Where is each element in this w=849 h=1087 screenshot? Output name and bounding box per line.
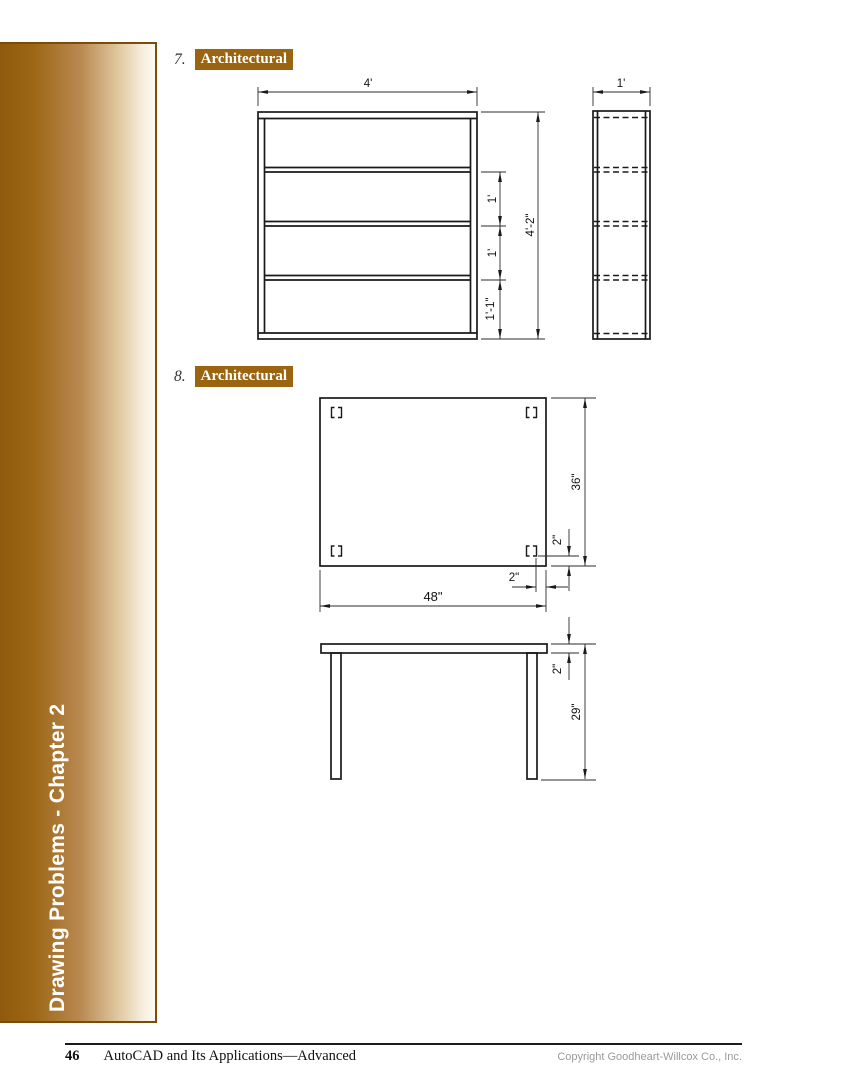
- dim-label-shelf-2: 1': [487, 249, 499, 258]
- bookshelf-shelves: [265, 168, 471, 281]
- dim-label-36: 36": [571, 474, 583, 491]
- table-drawing: 36" 2" 2" 48": [310, 390, 600, 800]
- dim-label-1ft-depth: 1': [617, 78, 626, 90]
- page-footer: 46 AutoCAD and Its Applications—Advanced…: [65, 1043, 742, 1065]
- page-number: 46: [65, 1048, 80, 1065]
- dim-label-shelf-3: 1'-1": [485, 298, 497, 321]
- book-title: AutoCAD and Its Applications—Advanced: [104, 1048, 357, 1065]
- dim-table-leg-inset-bottom: 2": [538, 529, 579, 591]
- dim-label-2in-v: 2": [552, 535, 564, 545]
- copyright-notice: Copyright Goodheart-Willcox Co., Inc.: [557, 1051, 742, 1063]
- problem-8-category-badge: Architectural: [195, 366, 293, 387]
- dim-label-48: 48": [423, 589, 442, 604]
- dim-label-2in-thickness: 2": [552, 664, 564, 674]
- table-hidden-legs: [332, 408, 537, 557]
- problem-8-header: 8. Architectural: [174, 366, 293, 387]
- bookshelf-hidden-lines: [594, 118, 649, 334]
- bookshelf-drawing: 4' 1' 1' 1' 1'-1" 4'-2": [250, 75, 660, 350]
- table-top-view: [320, 398, 546, 566]
- dim-bookshelf-width: 4': [258, 78, 477, 106]
- dim-label-4ft: 4': [364, 78, 373, 90]
- book-page: Drawing Problems - Chapter 2 7. Architec…: [0, 0, 849, 1087]
- dim-label-height: 4'-2": [525, 214, 537, 237]
- problem-8-number: 8.: [174, 368, 186, 386]
- bookshelf-front-view: [258, 112, 477, 339]
- problem-7-number: 7.: [174, 51, 186, 69]
- dim-bookshelf-depth: 1': [593, 78, 650, 106]
- chapter-sidebar: [0, 42, 157, 1023]
- dim-table-top-thickness: 2": [551, 617, 596, 680]
- problem-7-category-badge: Architectural: [195, 49, 293, 70]
- table-front-view: [321, 644, 547, 779]
- dim-label-shelf-1: 1': [487, 195, 499, 204]
- dim-label-2in-h: 2": [509, 572, 519, 584]
- dim-bookshelf-height: 4'-2": [525, 112, 538, 339]
- problem-7-header: 7. Architectural: [174, 49, 293, 70]
- dim-label-29: 29": [571, 704, 583, 721]
- sidebar-chapter-title: Drawing Problems - Chapter 2: [46, 704, 70, 1012]
- dim-table-height: 29": [541, 644, 596, 780]
- bookshelf-side-view: [593, 111, 650, 339]
